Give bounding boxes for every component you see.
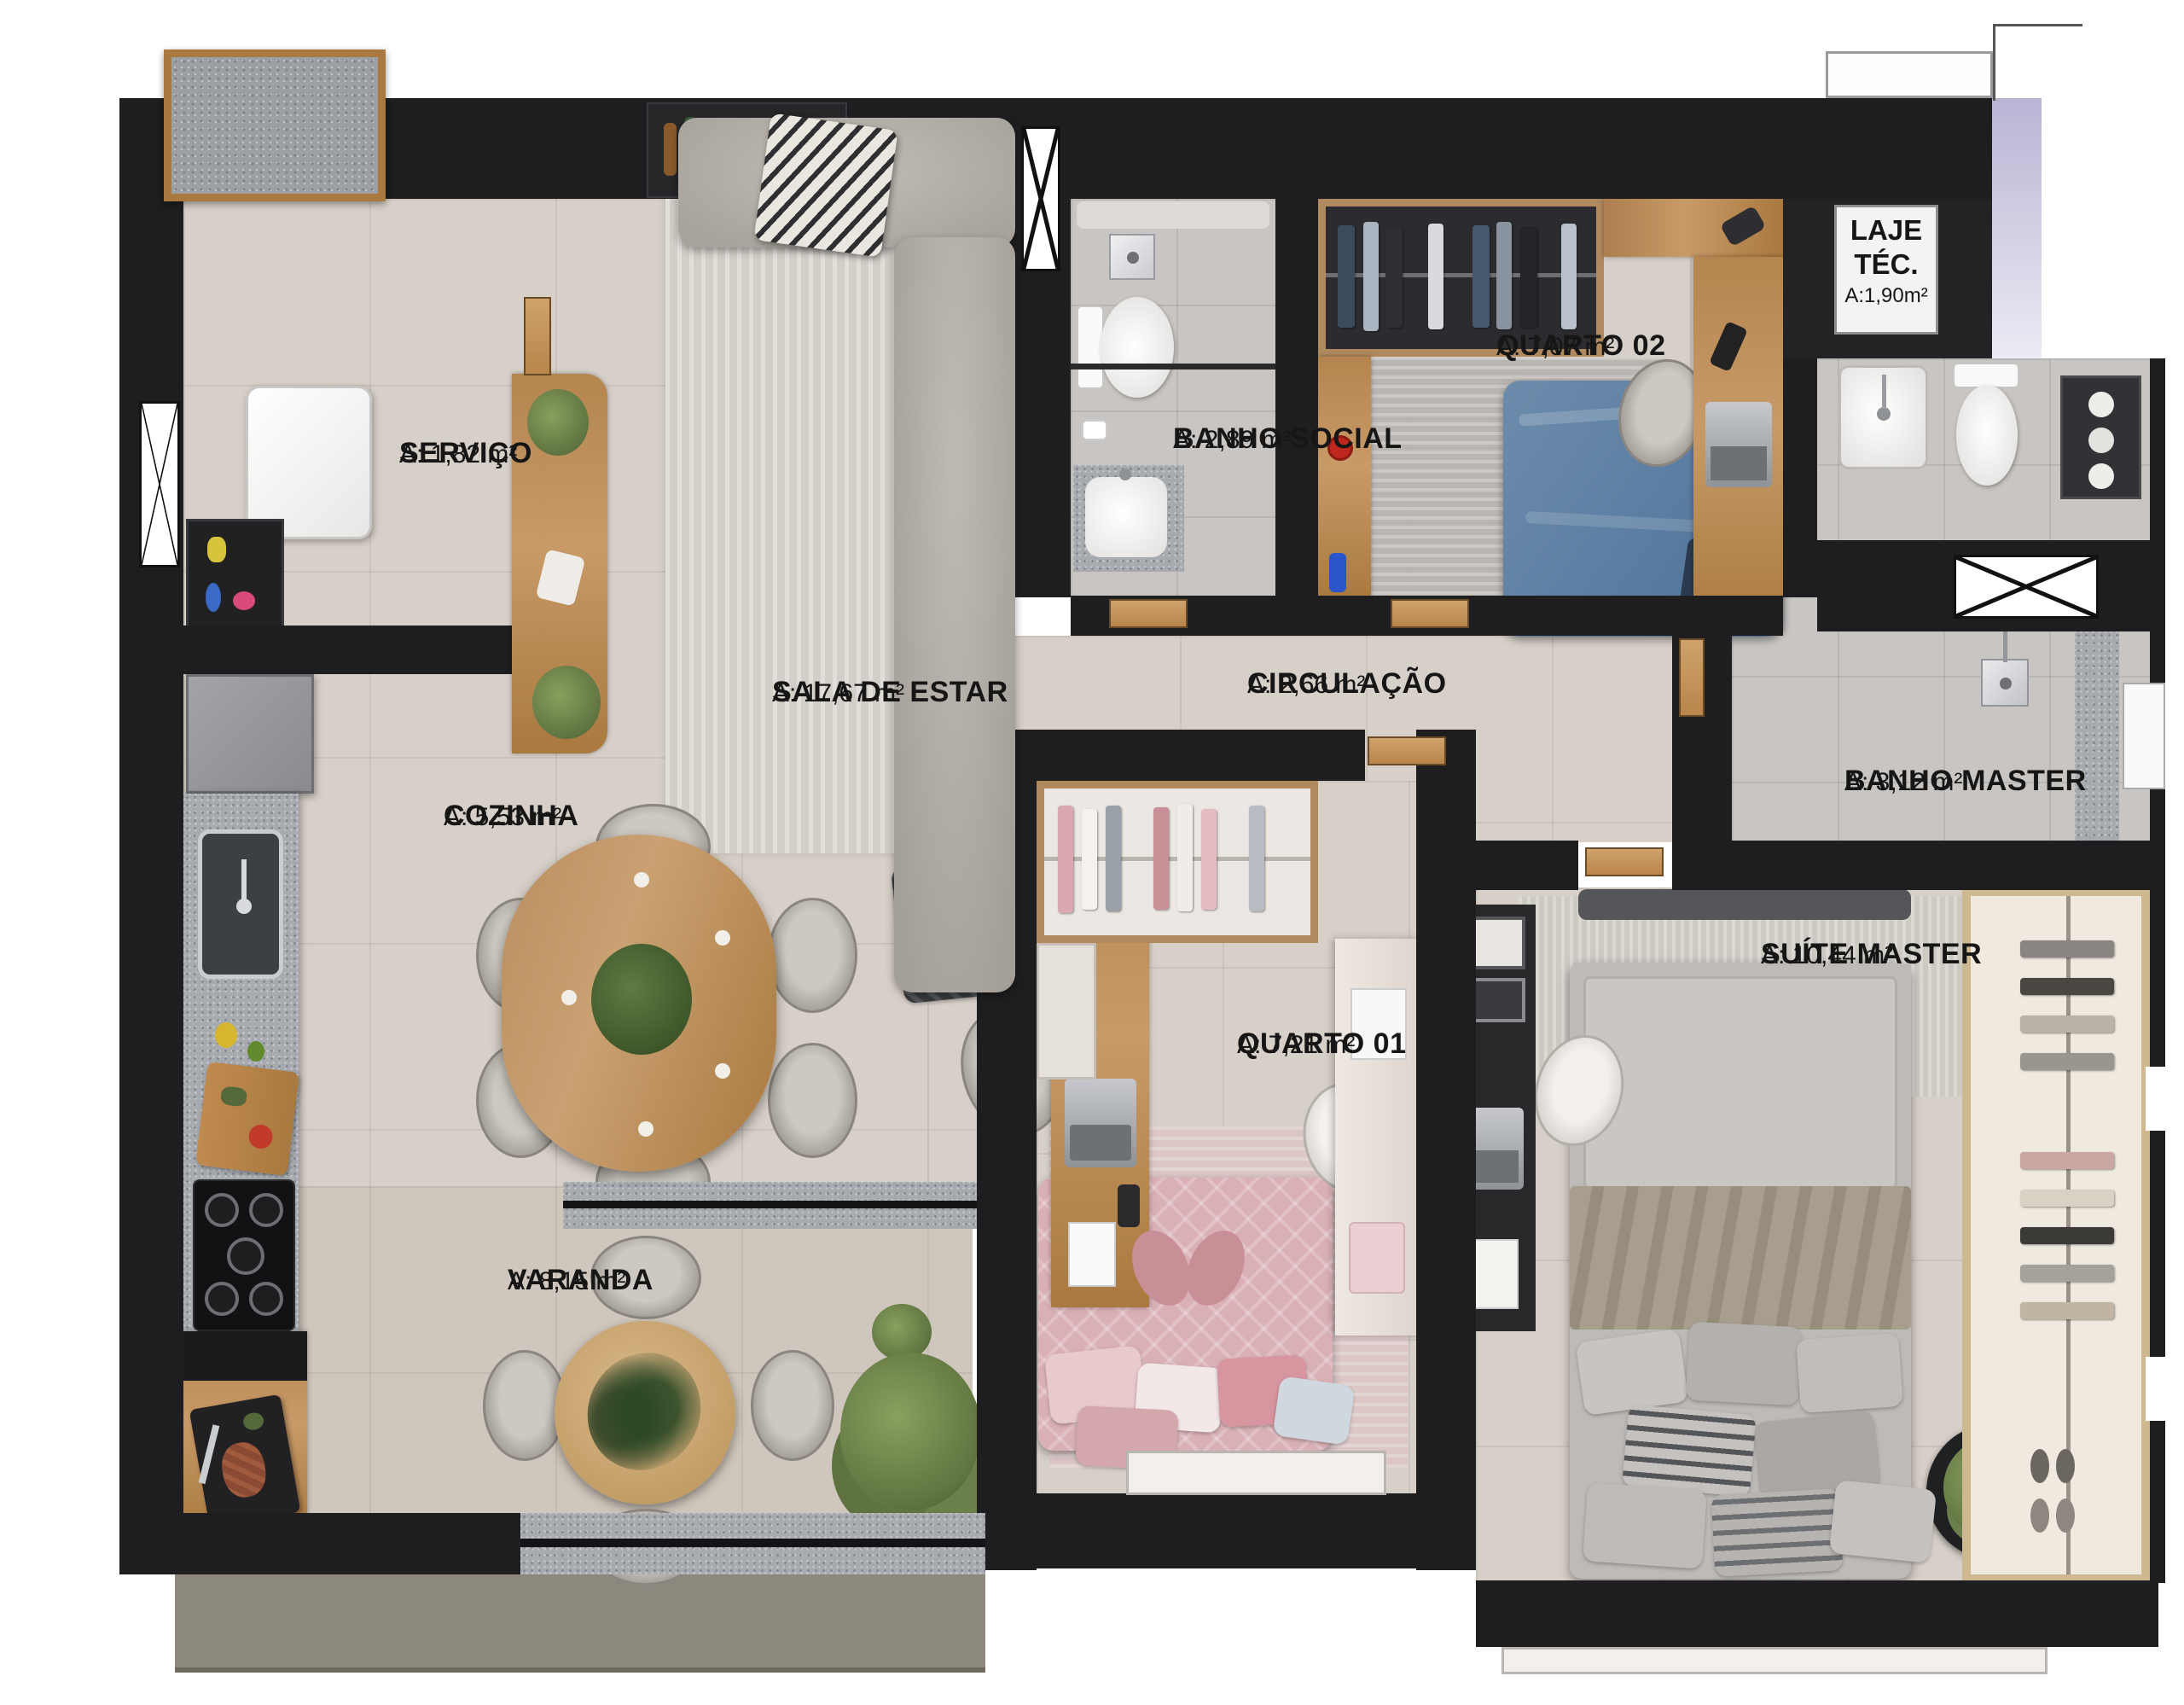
hanging-shirt xyxy=(1472,225,1490,328)
butterfly-wing xyxy=(1176,1221,1256,1314)
room-area: A: 2,66 m² xyxy=(1247,671,1365,700)
varanda-plant-large xyxy=(840,1353,981,1510)
console-plant xyxy=(532,666,601,739)
laje-top-window xyxy=(1826,51,1993,98)
hanging-clothes-white xyxy=(1082,809,1097,910)
magnet-board xyxy=(186,519,284,628)
suite-window-notch-2 xyxy=(2146,1357,2169,1421)
pepper-green xyxy=(247,1041,264,1062)
hanging-clothes-cream xyxy=(2020,1190,2114,1207)
shower-wall-strip xyxy=(2075,631,2119,843)
bed-sheet-top xyxy=(1583,976,1897,1190)
varanda-round-table xyxy=(555,1321,735,1504)
room-area: A: 1,82 m² xyxy=(399,440,517,469)
burner-icon xyxy=(249,1282,283,1316)
table-leaf-decor xyxy=(566,1332,723,1491)
hanging-shirt xyxy=(1561,224,1577,329)
room-area: A: 8,15 m² xyxy=(508,1267,625,1296)
room-area: A: 5,53 m² xyxy=(444,803,561,832)
shower-nozzle xyxy=(1127,252,1139,264)
hanging-shirt xyxy=(1385,227,1403,328)
laje-name: LAJE xyxy=(1837,214,1936,247)
suite-closet xyxy=(1962,887,2150,1583)
sofa-chaise-section xyxy=(894,237,1015,992)
notebook-b xyxy=(1068,1222,1116,1287)
window-servico xyxy=(139,401,180,567)
hanging-shirt xyxy=(1496,222,1512,329)
kitchen-sink xyxy=(198,829,283,979)
magnet xyxy=(207,537,226,562)
shower-head-master xyxy=(1981,659,2029,707)
steak-icon xyxy=(218,1440,270,1501)
varanda-plant-small xyxy=(872,1304,932,1360)
window-x-icon xyxy=(1024,129,1058,269)
bath-cabinet-master xyxy=(2060,375,2141,499)
rail-track-line xyxy=(520,1539,985,1547)
facade-glass-strip xyxy=(1992,98,2042,358)
varanda-rail-track xyxy=(520,1513,985,1574)
faucet-arm xyxy=(241,859,247,902)
building-edge-band xyxy=(175,1574,985,1673)
dining-table xyxy=(502,835,776,1172)
room-area: A: 10,44 m² xyxy=(1761,941,1893,970)
planter-box xyxy=(164,49,386,201)
hanging-shirt xyxy=(1428,224,1443,329)
room-area: A: 3,12 m² xyxy=(1844,768,1962,797)
shoes-pair xyxy=(2030,1498,2049,1533)
vanity-master xyxy=(1838,365,1928,469)
window-x-icon xyxy=(1956,557,2096,616)
shower-pipe xyxy=(2003,631,2007,662)
door-banho-master xyxy=(1679,638,1705,717)
blue-bottle xyxy=(1329,553,1346,592)
bath-mat xyxy=(1077,201,1269,229)
laptop xyxy=(1705,402,1772,487)
laje-name2: TÉC. xyxy=(1837,248,1936,281)
hanging-clothes-rose xyxy=(1201,809,1217,910)
wall-banho-master-bottom xyxy=(1672,841,2158,890)
wall-banho-master-left xyxy=(1672,596,1732,843)
burner-icon xyxy=(227,1237,264,1275)
suite-pillow-striped xyxy=(1622,1405,1757,1498)
burner-icon xyxy=(205,1282,239,1316)
hanging-shirt xyxy=(1338,225,1355,328)
desk-quarto02-side xyxy=(1693,257,1783,632)
wall-quarto01-bottom xyxy=(977,1493,1476,1568)
cutting-board xyxy=(195,1062,299,1176)
garnish-icon xyxy=(242,1411,265,1432)
blue-pillow xyxy=(1273,1376,1356,1446)
hanging-clothes-gray xyxy=(2020,1053,2114,1070)
towel-roll xyxy=(2088,392,2114,417)
wall-banho-social-right xyxy=(1275,98,1318,597)
hanging-clothes-gray xyxy=(2020,1265,2114,1282)
decor-tray xyxy=(536,549,586,606)
phone xyxy=(1118,1184,1140,1227)
door-quarto02 xyxy=(1391,599,1469,628)
suite-pillow xyxy=(1829,1480,1937,1563)
hanging-clothes-tan xyxy=(2020,1302,2114,1319)
hanging-clothes-dark xyxy=(2020,1227,2114,1244)
suite-pillow-striped xyxy=(1711,1488,1844,1577)
faucet-icon xyxy=(1877,407,1891,421)
table-candle xyxy=(715,930,730,946)
burner-icon xyxy=(205,1193,239,1227)
tomato-icon xyxy=(247,1123,274,1149)
bed-bench-suite xyxy=(1578,889,1911,920)
herb-icon xyxy=(220,1085,247,1107)
table-candle xyxy=(634,872,649,887)
varanda-door-track xyxy=(563,1182,981,1229)
burner-icon xyxy=(249,1193,283,1227)
wall-quarto01-top xyxy=(981,730,1365,781)
toilet-bowl xyxy=(1101,297,1174,398)
faucet-icon xyxy=(1119,468,1131,480)
pink-laptop xyxy=(1349,1222,1405,1294)
toilet-master xyxy=(1949,363,2026,491)
wall-servico-bottom xyxy=(119,626,559,674)
hanging-clothes-pink xyxy=(1153,807,1169,910)
towel-roll xyxy=(2088,428,2114,453)
window-banho-social xyxy=(1021,126,1060,271)
built-in-grill xyxy=(183,1331,307,1381)
suite-pillow xyxy=(1576,1329,1689,1416)
banho-master-window-recess xyxy=(2123,683,2165,789)
room-area: A: 7,21 m² xyxy=(1237,1031,1355,1060)
bed-blanket-fold xyxy=(1570,1186,1911,1330)
bottle-icon xyxy=(664,123,677,176)
corner-mark-vertical xyxy=(1993,24,1995,101)
shoes-pair xyxy=(2030,1449,2049,1483)
toilet-bowl xyxy=(1956,385,2018,486)
phone xyxy=(1709,321,1748,372)
hanging-clothes-dark xyxy=(2020,978,2114,995)
wall-banho-master-left-upper xyxy=(1783,358,1817,597)
fridge xyxy=(186,674,314,794)
cooktop xyxy=(193,1179,295,1331)
room-area: A: 17,67 m² xyxy=(772,679,904,708)
hanging-shirt xyxy=(1520,227,1537,328)
toilet-social xyxy=(1077,297,1175,398)
desk-quarto01 xyxy=(1335,939,1420,1335)
hanging-clothes-rose xyxy=(2020,1152,2114,1169)
door-quarto01 xyxy=(1368,736,1446,765)
console-sideboard xyxy=(512,374,607,754)
quarto01-window-sill xyxy=(1126,1451,1386,1495)
hanging-clothes-tan xyxy=(2020,1015,2114,1033)
laptop-keyboard xyxy=(1070,1125,1131,1161)
table-candle xyxy=(715,1063,730,1079)
wall-suite-bottom xyxy=(1476,1580,2158,1647)
suite-pillow xyxy=(1686,1322,1803,1406)
door-suite xyxy=(1585,847,1664,876)
door-banho-social xyxy=(1109,599,1188,628)
wall-suite-top xyxy=(1476,841,1578,890)
shower-head-social xyxy=(1109,234,1155,280)
room-area: A: 7,07 m² xyxy=(1496,333,1614,362)
laptop xyxy=(1065,1079,1136,1167)
hanging-clothes-gray xyxy=(2020,940,2114,957)
room-area: A: 2,89 m² xyxy=(1173,426,1291,455)
wall-left xyxy=(119,98,183,1574)
hanging-clothes-gray xyxy=(1106,806,1121,911)
sink-basin xyxy=(1085,477,1167,557)
pepper-yellow xyxy=(215,1022,237,1048)
laje-area: A:1,90m² xyxy=(1837,284,1936,308)
suite-pillow xyxy=(1583,1482,1707,1569)
window-banho-master xyxy=(1954,555,2099,619)
magnet xyxy=(233,591,255,610)
magnet xyxy=(206,583,221,612)
knife-icon xyxy=(199,1424,220,1484)
table-candle xyxy=(638,1121,653,1137)
table-candle xyxy=(561,990,577,1005)
butterfly-pillow xyxy=(1135,1222,1246,1314)
shower-glass-line xyxy=(1071,364,1275,370)
corner-mark-horizontal xyxy=(1993,24,2082,26)
dresser-quarto01 xyxy=(1037,943,1096,1079)
hanging-clothes-gray xyxy=(1249,806,1264,911)
wall-varanda-bottom xyxy=(119,1513,525,1574)
shower-nozzle xyxy=(2000,678,2012,690)
suite-window-sill xyxy=(1501,1647,2047,1674)
window-x-icon xyxy=(142,404,177,565)
wardrobe-quarto01 xyxy=(1037,781,1318,943)
console-plant xyxy=(527,389,589,456)
apartment-floor-plan: LAJE TÉC. A:1,90m² xyxy=(0,0,2184,1705)
towel-roll xyxy=(2088,463,2114,489)
suite-window-notch-1 xyxy=(2146,1067,2169,1131)
laje-tec-panel: LAJE TÉC. A:1,90m² xyxy=(1834,205,1938,335)
table-centerpiece-plant xyxy=(591,944,692,1055)
shoes-pair xyxy=(2056,1498,2075,1533)
washing-machine xyxy=(246,386,372,539)
toilet-paper xyxy=(1082,420,1107,440)
varanda-chair xyxy=(751,1350,834,1461)
vanity-counter-social xyxy=(1073,465,1184,572)
shoes-pair xyxy=(2056,1449,2075,1483)
hanging-clothes-pink xyxy=(1058,806,1073,913)
hanging-clothes-white xyxy=(1177,804,1193,911)
wall-quarto01-right xyxy=(1416,730,1476,1570)
dining-chair xyxy=(768,1043,857,1158)
dining-chair xyxy=(768,898,857,1013)
suite-pillow xyxy=(1796,1333,1903,1413)
hanging-shirt xyxy=(1363,222,1379,331)
faucet-arm xyxy=(1882,375,1886,409)
door-servico xyxy=(524,297,551,375)
sofa-throw-blanket xyxy=(753,113,897,257)
door-track-line xyxy=(563,1201,981,1208)
laptop-keyboard xyxy=(1711,446,1767,480)
